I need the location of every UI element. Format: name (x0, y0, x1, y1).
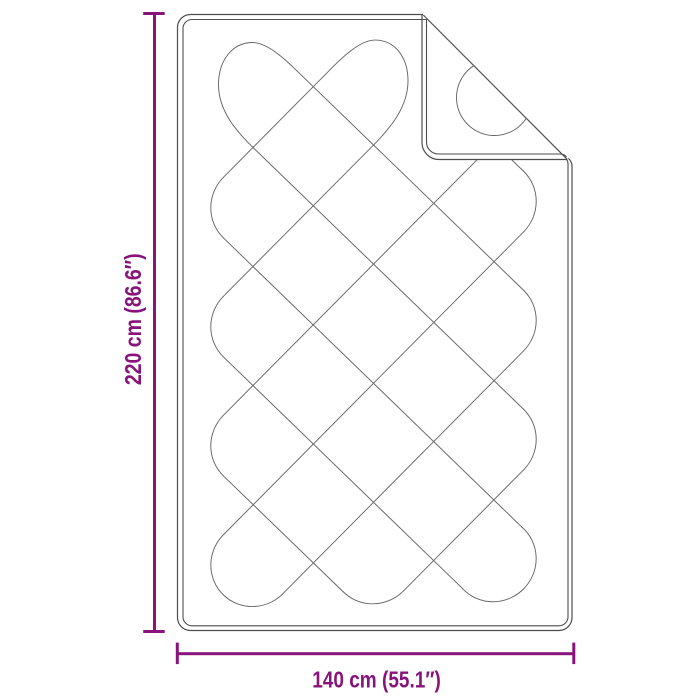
svg-text:140 cm (55.1″): 140 cm (55.1″) (312, 667, 441, 693)
svg-text:220 cm (86.6″): 220 cm (86.6″) (119, 253, 146, 385)
